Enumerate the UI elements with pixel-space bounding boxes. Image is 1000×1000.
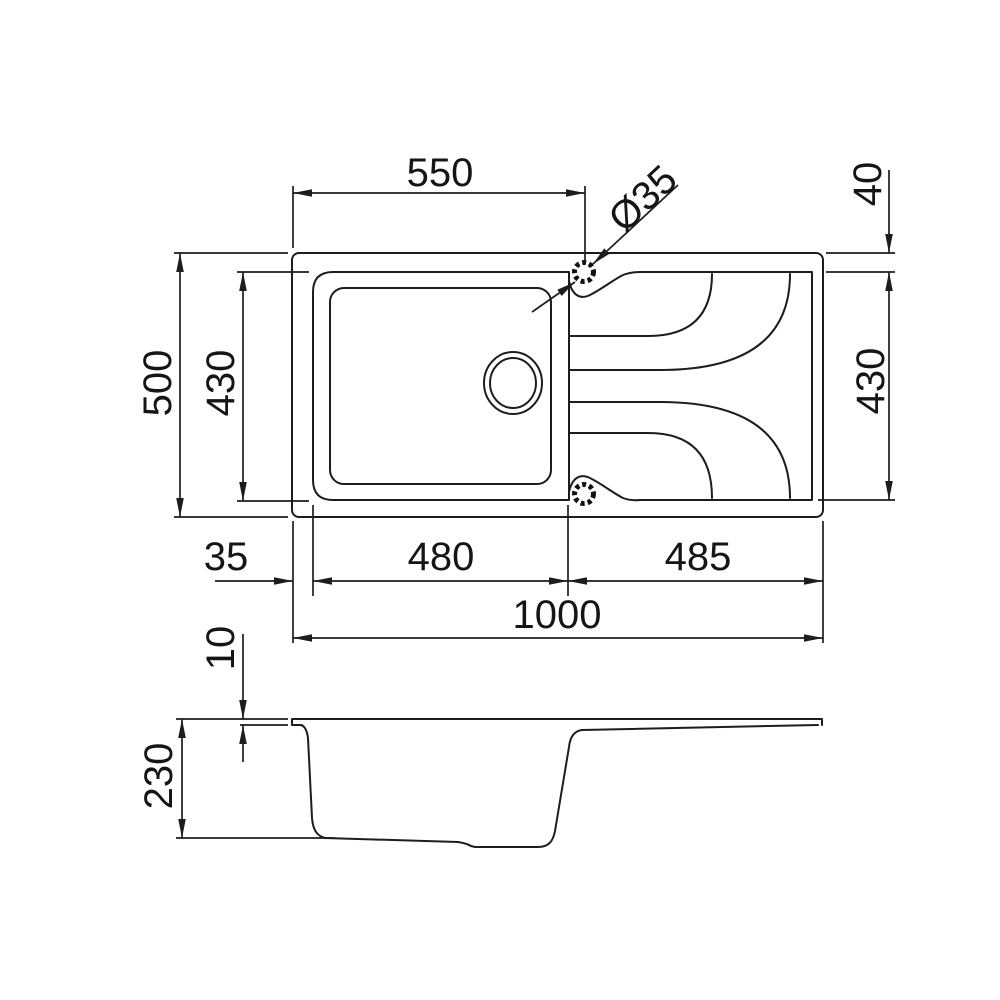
dimension-550: 550 bbox=[293, 151, 585, 195]
dim-label-35: 35 bbox=[204, 535, 249, 579]
bowl-profile bbox=[301, 725, 582, 847]
drain-hole-outer bbox=[484, 352, 542, 414]
dim-label-230: 230 bbox=[137, 743, 181, 810]
dim-label-tap-diameter: Ø35 bbox=[600, 157, 685, 241]
dimension-500: 500 bbox=[136, 253, 180, 517]
dimension-480: 480 bbox=[313, 535, 568, 581]
dim-label-550: 550 bbox=[407, 151, 474, 195]
dimension-tap-diameter: Ø35 bbox=[532, 157, 686, 312]
rim-profile bbox=[292, 719, 822, 725]
dim-label-485: 485 bbox=[665, 535, 732, 579]
sink-technical-drawing: 550 Ø35 40 500 430 430 35 480 485 1000 bbox=[0, 0, 1000, 1000]
dim-label-1000: 1000 bbox=[513, 593, 602, 637]
dimension-430-right: 430 bbox=[849, 272, 893, 500]
dimension-230: 230 bbox=[137, 719, 182, 838]
dim-label-480: 480 bbox=[408, 535, 475, 579]
tap-hole-bottom bbox=[575, 485, 594, 504]
dim-label-430-right: 430 bbox=[849, 348, 893, 415]
tap-hole-top bbox=[575, 263, 594, 282]
dimension-1000: 1000 bbox=[293, 593, 823, 638]
outer-rim bbox=[292, 253, 823, 517]
dimension-40: 40 bbox=[846, 162, 890, 253]
drainer-groove bbox=[569, 402, 790, 498]
extension-lines bbox=[174, 186, 895, 838]
dimension-430-left: 430 bbox=[199, 272, 243, 501]
dim-label-10: 10 bbox=[199, 626, 243, 671]
top-view bbox=[292, 253, 823, 517]
dimension-10: 10 bbox=[199, 626, 243, 762]
side-view bbox=[292, 719, 822, 847]
dim-label-40: 40 bbox=[846, 162, 890, 207]
dimension-35: 35 bbox=[204, 535, 293, 581]
dim-label-500: 500 bbox=[136, 350, 180, 417]
bowl-inner bbox=[330, 288, 551, 484]
drainer-slope-line bbox=[582, 725, 818, 730]
drain-hole-inner bbox=[490, 358, 536, 408]
dimension-485: 485 bbox=[568, 535, 823, 581]
drawing-svg: 550 Ø35 40 500 430 430 35 480 485 1000 bbox=[0, 0, 1000, 1000]
dim-label-430-left: 430 bbox=[199, 350, 243, 417]
bowl-outline bbox=[313, 272, 569, 500]
